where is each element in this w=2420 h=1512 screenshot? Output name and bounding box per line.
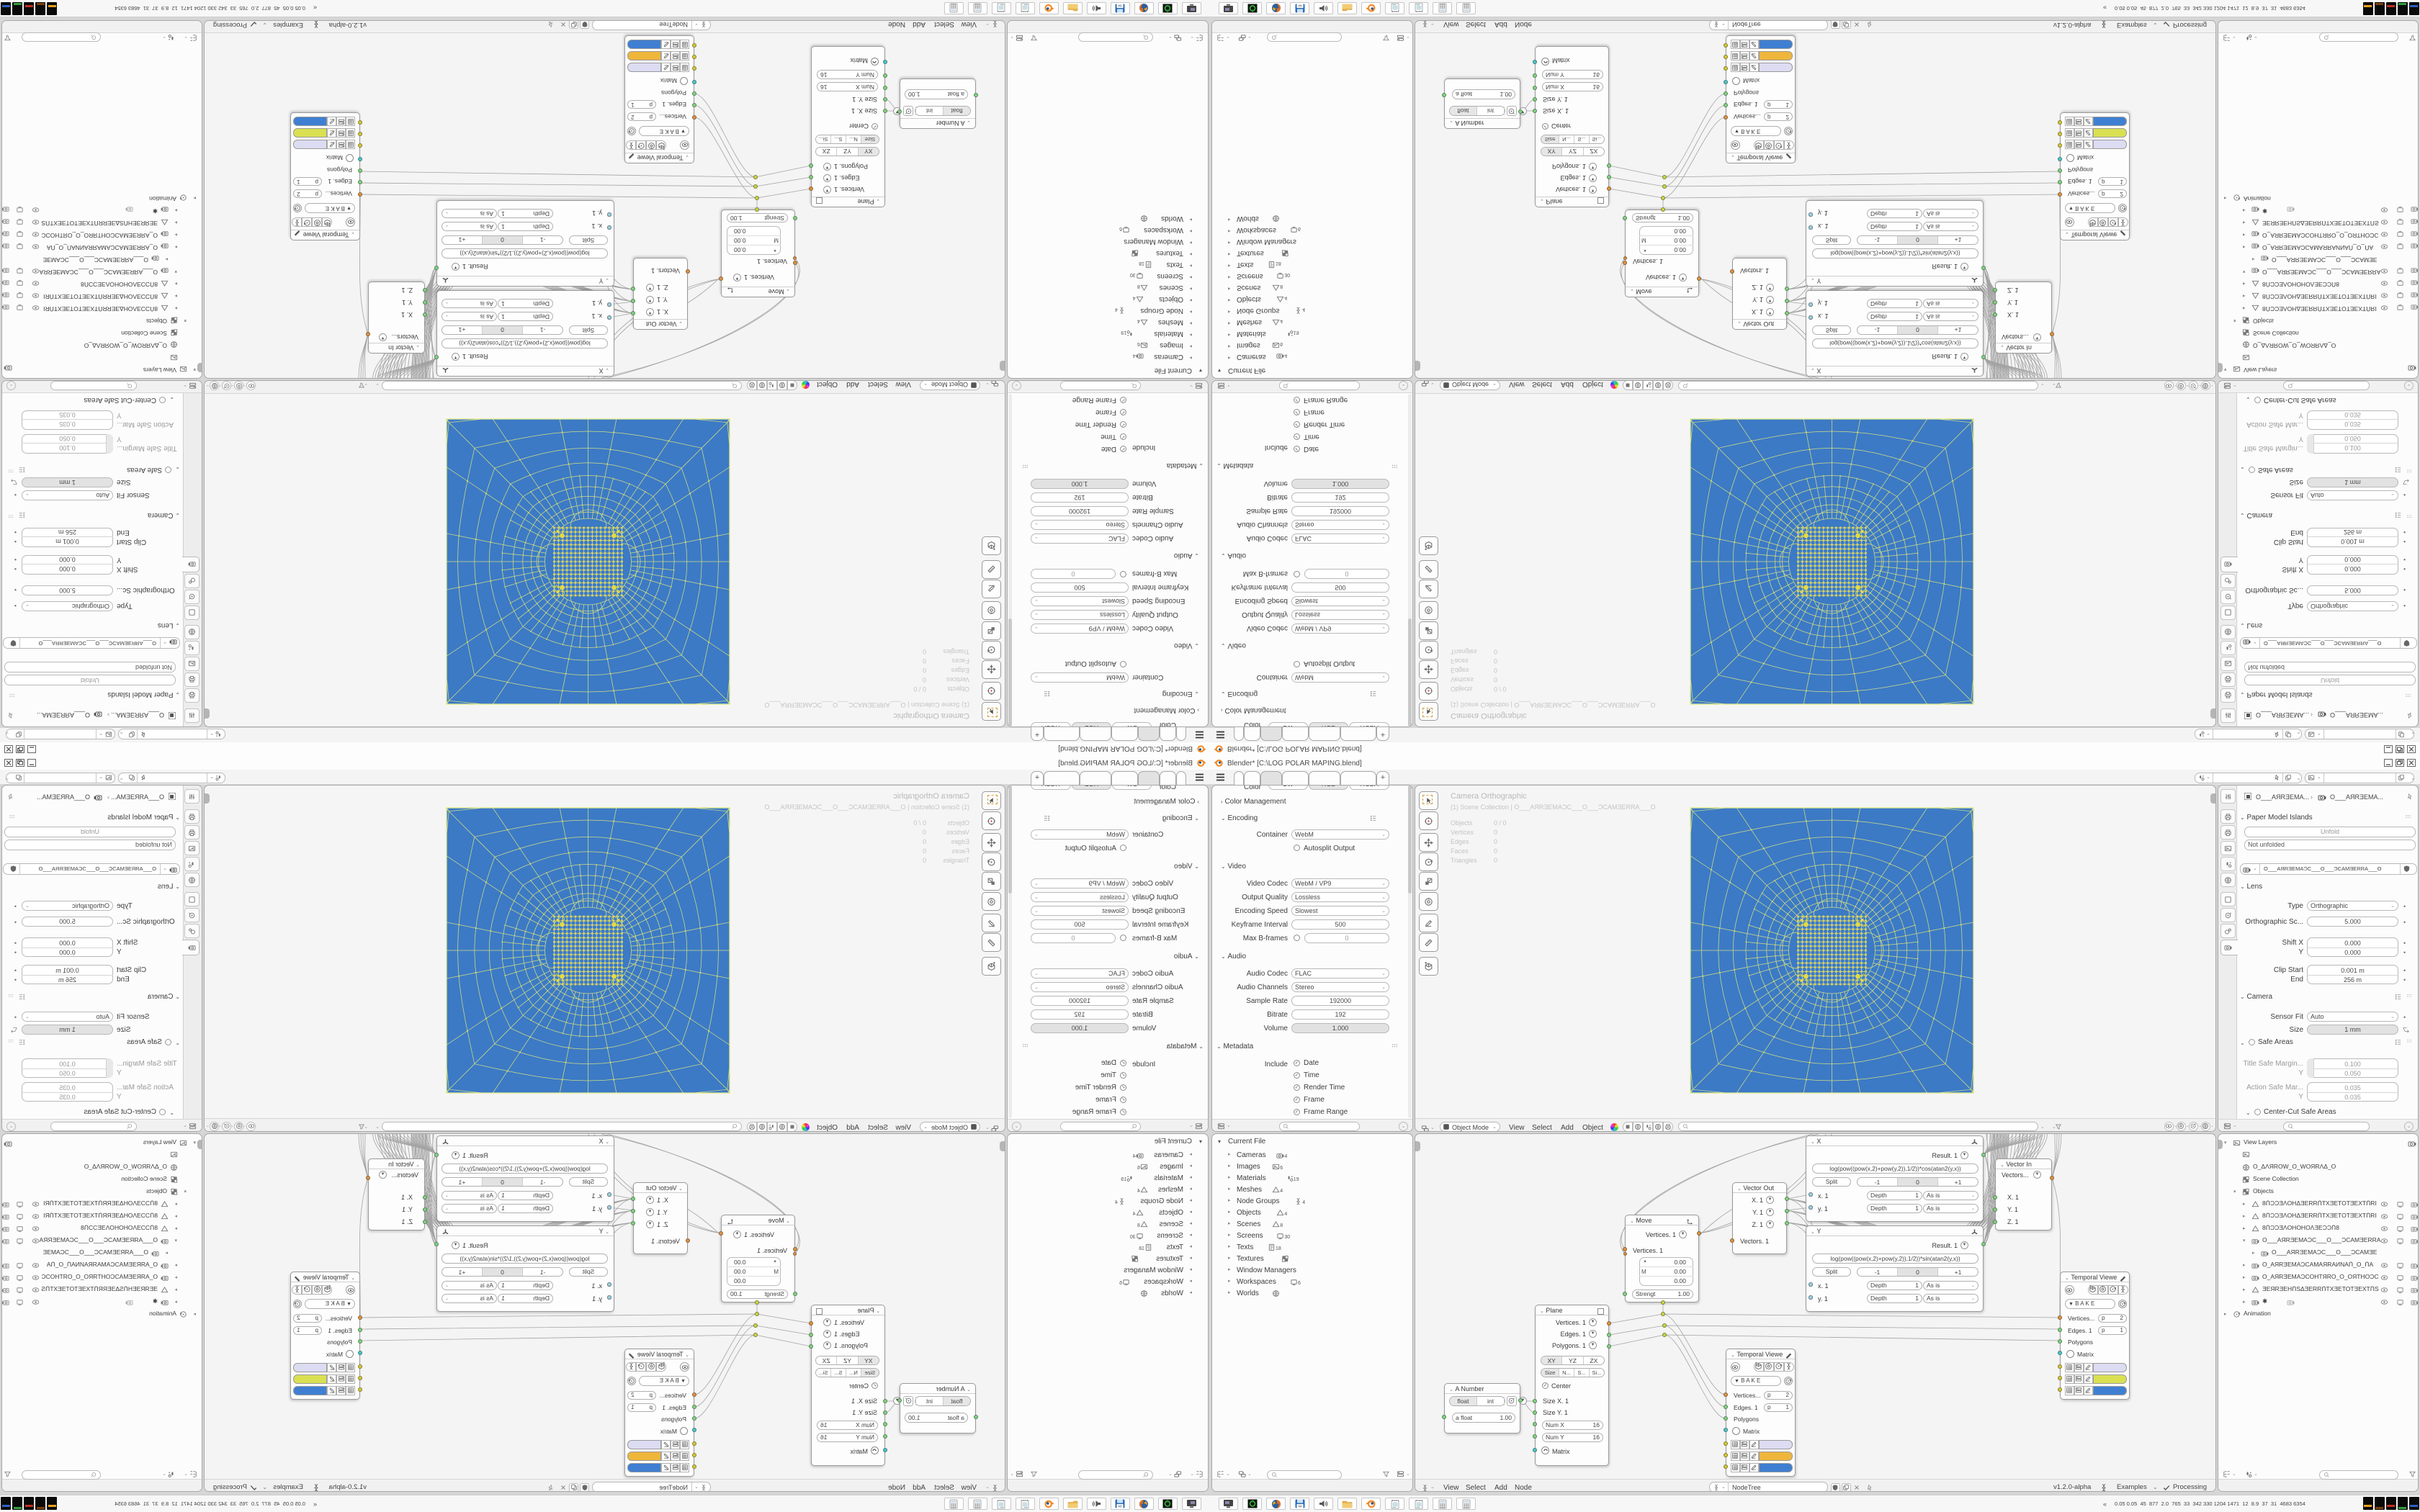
- svg-text:64: 64: [1298, 4, 1302, 8]
- svg-text:64: 64: [1119, 4, 1123, 8]
- svg-text:64: 64: [1119, 1505, 1123, 1508]
- svg-text:64: 64: [1298, 1505, 1302, 1508]
